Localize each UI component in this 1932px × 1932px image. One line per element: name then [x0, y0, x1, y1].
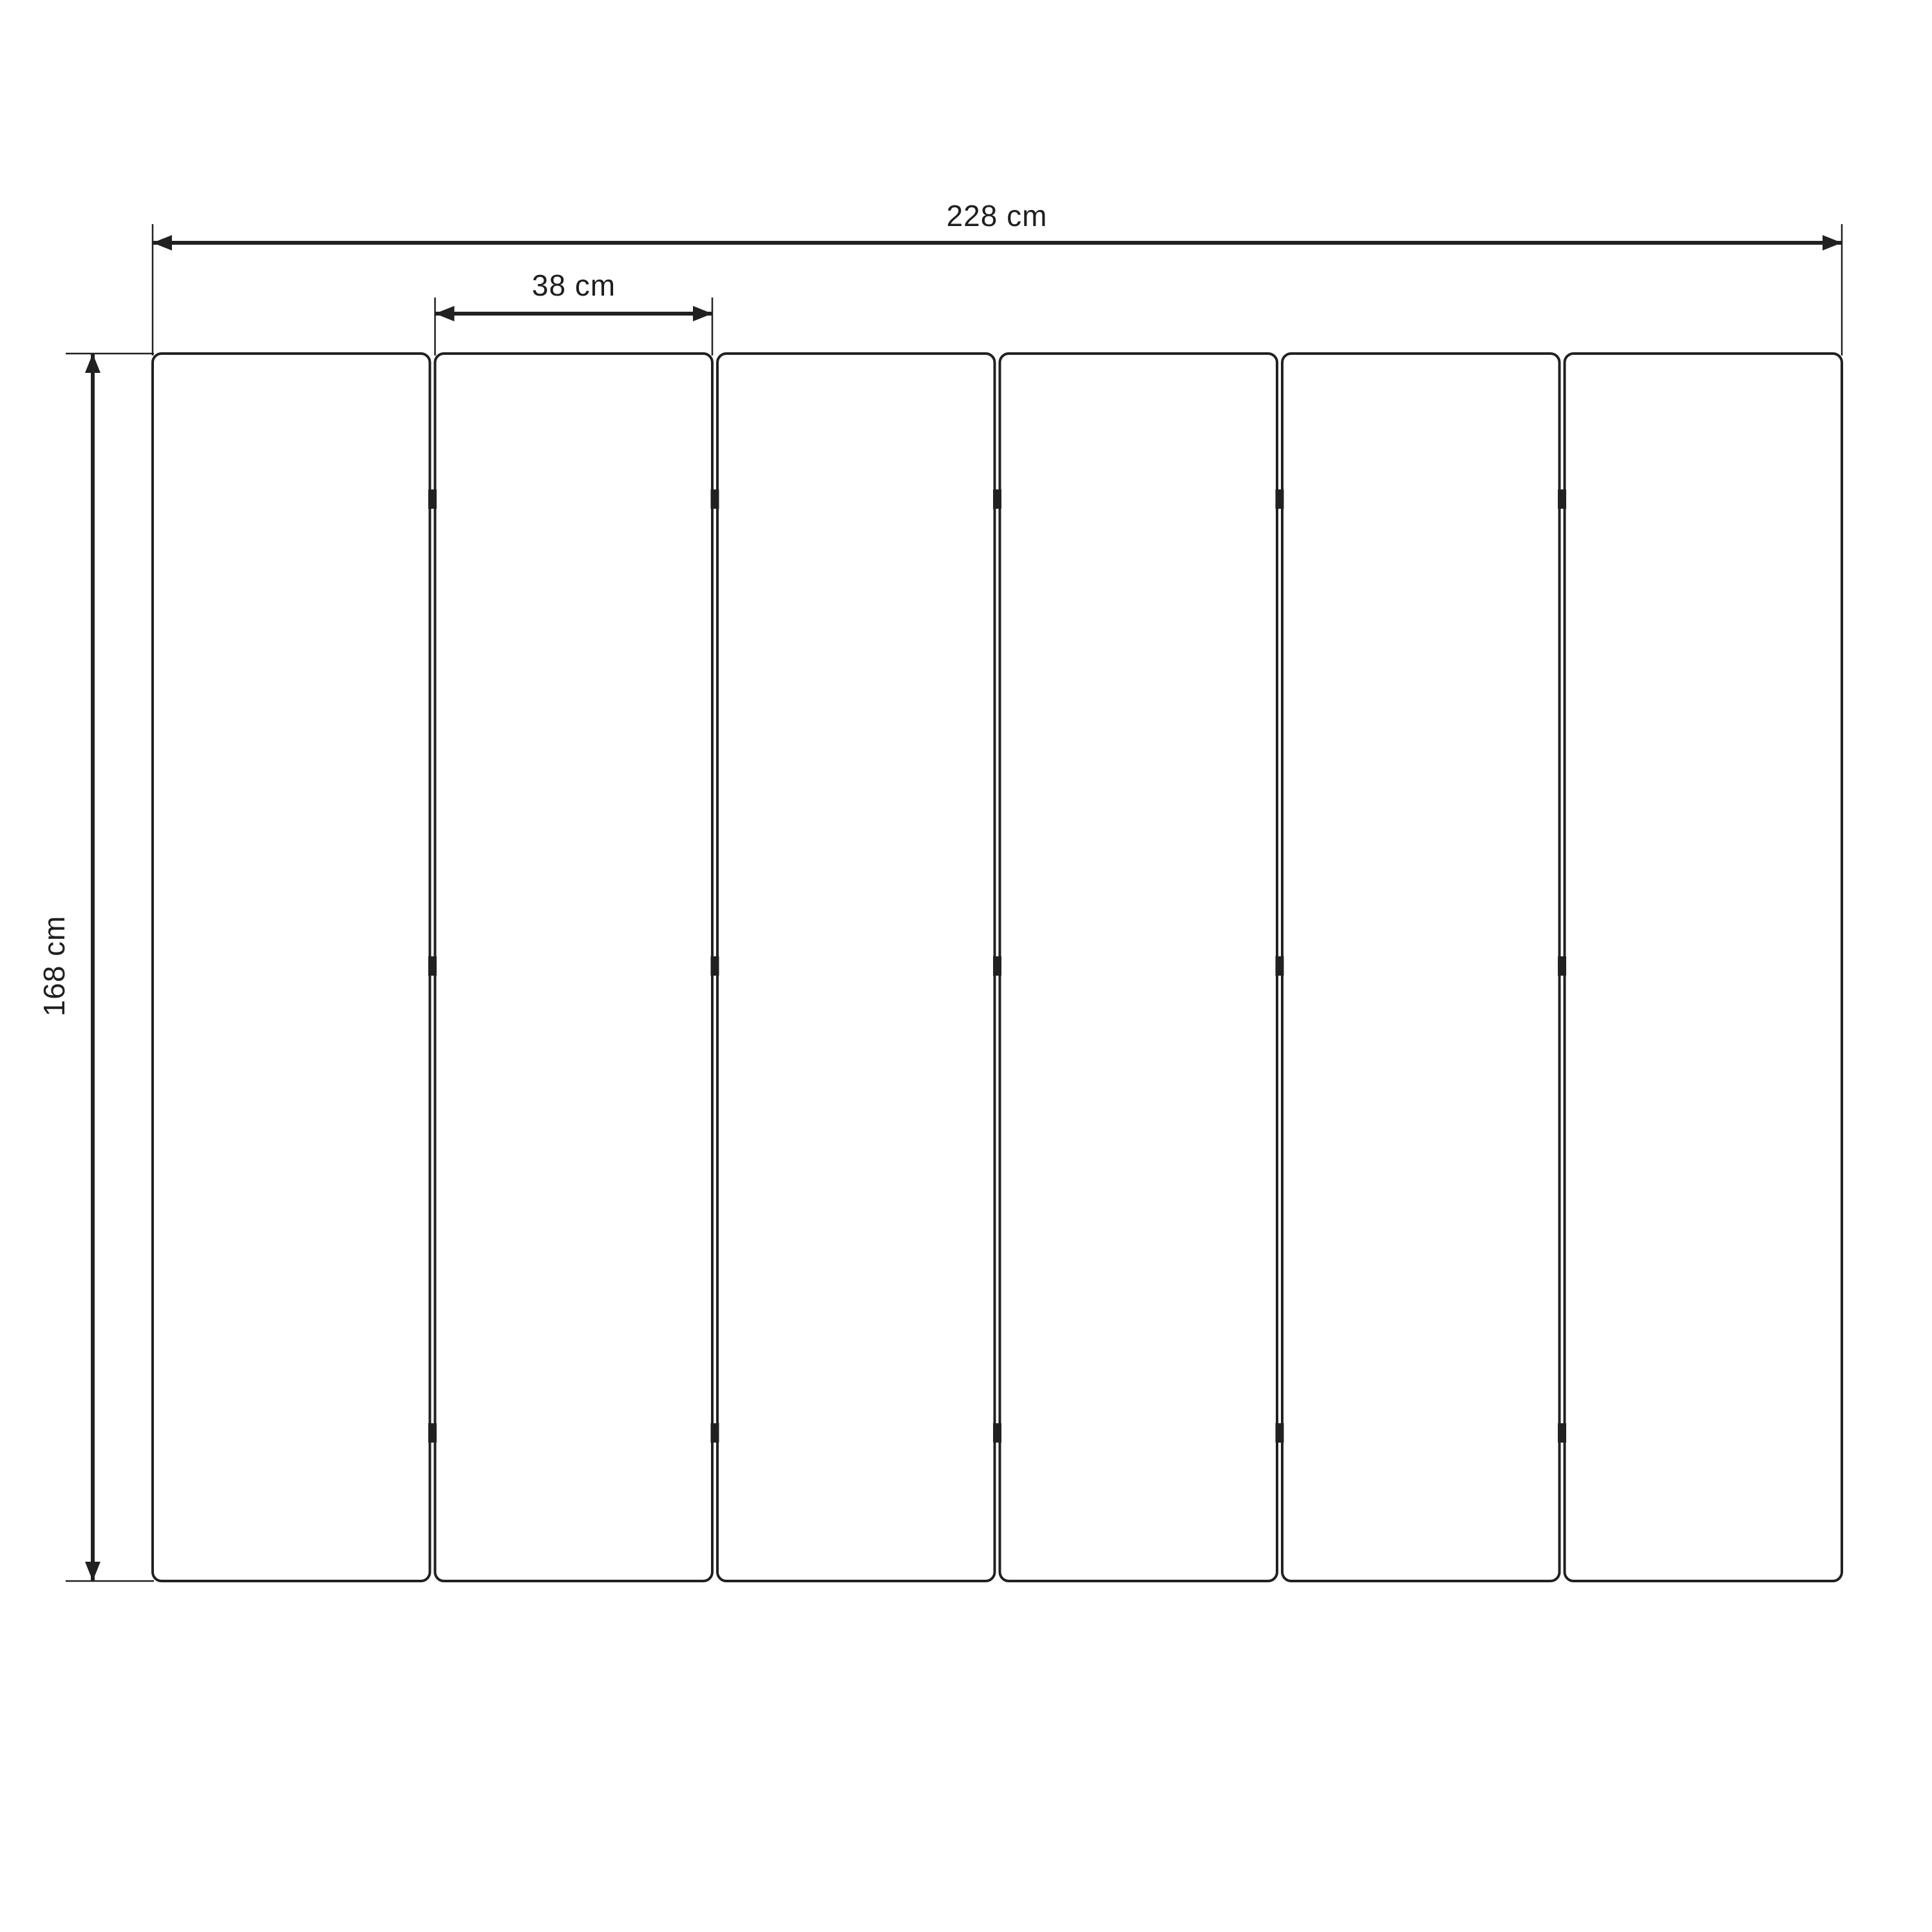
panel-4: [1000, 354, 1278, 1581]
dimension-panel-width: 38 cm: [435, 269, 713, 355]
total-width-label: 228 cm: [947, 199, 1048, 232]
panel-6: [1565, 354, 1842, 1581]
hinge-gap3-row1: [993, 489, 1001, 509]
hinge-gap1-row2: [428, 956, 437, 976]
dimension-height: 168 cm: [37, 354, 154, 1581]
hinge-gap2-row3: [711, 1423, 719, 1443]
hinge-gap5-row2: [1558, 956, 1566, 976]
hinge-gap5-row3: [1558, 1423, 1566, 1443]
hinge-gap4-row1: [1276, 489, 1284, 509]
panel-3: [717, 354, 995, 1581]
panel-height-label: 168 cm: [37, 916, 71, 1017]
panel-5: [1282, 354, 1560, 1581]
hinge-gap3-row2: [993, 956, 1001, 976]
hinge-gap1-row3: [428, 1423, 437, 1443]
hinge-gap2-row1: [711, 489, 719, 509]
hinge-gap2-row2: [711, 956, 719, 976]
hinge-gap5-row1: [1558, 489, 1566, 509]
panel-dimension-drawing: 228 cm 38 cm 168 cm: [0, 0, 1932, 1932]
hinge-gap1-row1: [428, 489, 437, 509]
hinge-gap3-row3: [993, 1423, 1001, 1443]
dimension-total-width: 228 cm: [153, 199, 1842, 355]
hinge-gap4-row3: [1276, 1423, 1284, 1443]
hinge-gap4-row2: [1276, 956, 1284, 976]
panel-width-label: 38 cm: [532, 269, 616, 302]
panel-2: [435, 354, 713, 1581]
panel-1: [153, 354, 430, 1581]
